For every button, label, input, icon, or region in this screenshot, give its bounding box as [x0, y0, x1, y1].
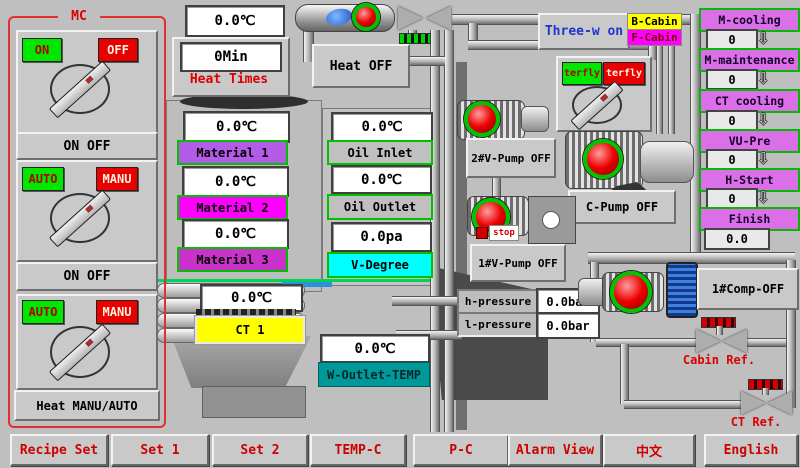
heat-auto-button[interactable]: AUTO: [22, 300, 64, 324]
heat-status-button[interactable]: Heat OFF: [312, 44, 410, 88]
material-label: Material 2: [177, 195, 288, 220]
pipe: [656, 46, 663, 134]
cpump-shaft: [640, 141, 694, 183]
heater-temp-display: 0.0℃: [185, 5, 285, 37]
comp1-status-label[interactable]: 1#Comp-OFF: [697, 268, 799, 310]
cpump-indicator-light: [583, 139, 623, 179]
stage-value: 0: [706, 188, 758, 209]
v-degree-label: V-Degree: [327, 252, 433, 278]
l-pressure-value: 0.0bar: [536, 312, 600, 339]
ct-ref-label: CT Ref.: [724, 415, 788, 429]
auto-button[interactable]: AUTO: [22, 167, 64, 191]
oil-inlet-temp-display: 0.0℃: [331, 112, 433, 142]
nav-button-set-1[interactable]: Set 1: [111, 434, 209, 466]
ct1-label: CT 1: [195, 316, 305, 344]
heat-manu-button[interactable]: MANU: [96, 300, 138, 324]
pipe: [596, 338, 700, 347]
f-cabin-button[interactable]: F-Cabin: [627, 29, 682, 46]
material-label: Material 3: [177, 247, 288, 272]
cabin-ref-valve-icon[interactable]: [722, 329, 747, 353]
butterfly-rotary-switch[interactable]: [572, 86, 622, 124]
pipe: [742, 338, 790, 347]
oil-outlet-temp-display: 0.0℃: [331, 165, 432, 194]
vpump2-indicator-light: [464, 101, 500, 137]
cabin-ref-valve-icon[interactable]: [696, 329, 721, 353]
valve-position-indicator: [399, 33, 431, 44]
cpump-status-label[interactable]: C-Pump OFF: [568, 190, 676, 224]
auto-manu-rotary-switch[interactable]: [50, 193, 110, 243]
mc-title: MC: [58, 9, 100, 24]
manu-button[interactable]: MANU: [96, 167, 138, 191]
mc-group-label: ON OFF: [16, 132, 158, 160]
heat-times-label: Heat Times: [176, 70, 282, 88]
stage-value: 0: [706, 110, 758, 131]
three-way-button[interactable]: Three-w on: [538, 13, 630, 50]
nav-button-recipe-set[interactable]: Recipe Set: [10, 434, 108, 466]
down-arrow-icon: ⇩: [757, 27, 770, 47]
vacuum-degree-display: 0.0pa: [331, 222, 432, 252]
l-pressure-label: l-pressure: [457, 312, 539, 337]
pipe: [624, 400, 744, 409]
vpump1-alarm-square: [476, 227, 488, 239]
material-temp-display: 0.0℃: [182, 166, 289, 197]
ct1-grille: [196, 309, 296, 316]
on-button[interactable]: ON: [22, 38, 62, 62]
nav-button-chinese[interactable]: 中文: [603, 434, 695, 466]
hmi-screen: 0.0℃ 0Min Heat Times Heat OFF Three-w on…: [0, 0, 800, 468]
mc-group-label: ON OFF: [16, 262, 158, 291]
pipe: [668, 46, 675, 134]
oil-inlet-label: Oil Inlet: [327, 140, 433, 165]
power-rotary-switch[interactable]: [50, 64, 110, 114]
down-arrow-icon: ⇩: [757, 67, 770, 87]
butterfly-off-button[interactable]: terfly: [603, 62, 645, 85]
stage-value: 0.0: [704, 228, 770, 250]
oil-outlet-label: Oil Outlet: [327, 194, 433, 220]
w-outlet-label: W-Outlet-TEMP: [318, 362, 430, 387]
material-label: Material 1: [177, 140, 288, 165]
material-temp-display: 0.0℃: [183, 111, 290, 143]
down-arrow-icon: ⇩: [757, 108, 770, 128]
stage-value: 0: [706, 149, 758, 170]
nav-button-alarm-view[interactable]: Alarm View: [508, 434, 602, 466]
material-temp-display: 0.0℃: [182, 219, 289, 249]
down-arrow-icon: ⇩: [757, 186, 770, 206]
pipe: [620, 344, 629, 404]
comp1-indicator-light: [610, 271, 652, 313]
heat-times-display: 0Min: [180, 42, 282, 72]
off-button[interactable]: OFF: [98, 38, 138, 62]
comp1-fan: [666, 262, 698, 318]
vpump1-status-label[interactable]: 1#V-Pump OFF: [470, 244, 566, 282]
vpump1-bearing: [542, 211, 560, 229]
nav-button-temp-c[interactable]: TEMP-C: [310, 434, 406, 466]
ct1-temp-display: 0.0℃: [200, 284, 303, 312]
down-arrow-icon: ⇩: [757, 147, 770, 167]
heat-rotary-switch[interactable]: [50, 326, 110, 378]
nav-button-set-2[interactable]: Set 2: [212, 434, 308, 466]
vpump2-status-label[interactable]: 2#V-Pump OFF: [466, 138, 556, 178]
three-way-valve-icon[interactable]: [426, 6, 451, 30]
stage-value: 0: [706, 69, 758, 90]
w-outlet-temp-display: 0.0℃: [320, 334, 430, 363]
pipe: [444, 30, 454, 432]
vpump2-shaft: [521, 106, 549, 132]
h-pressure-label: h-pressure: [457, 289, 539, 314]
heater-indicator-light: [352, 3, 380, 31]
cooling-tower-base: [202, 386, 306, 418]
b-cabin-button[interactable]: B-Cabin: [627, 13, 682, 30]
three-way-valve-icon[interactable]: [398, 6, 423, 30]
pipe: [405, 56, 445, 66]
vpump1-stop-badge: stop: [489, 225, 519, 241]
cabin-ref-label: Cabin Ref.: [677, 353, 761, 367]
stage-value: 0: [706, 29, 758, 50]
nav-button-english[interactable]: English: [704, 434, 798, 466]
ct-ref-valve-icon[interactable]: [767, 391, 792, 415]
mc-group-label: Heat MANU/AUTO: [14, 390, 160, 421]
butterfly-on-button[interactable]: terfly: [562, 62, 602, 85]
ct-ref-valve-icon[interactable]: [741, 391, 766, 415]
nav-button-p-c[interactable]: P-C: [413, 434, 509, 466]
